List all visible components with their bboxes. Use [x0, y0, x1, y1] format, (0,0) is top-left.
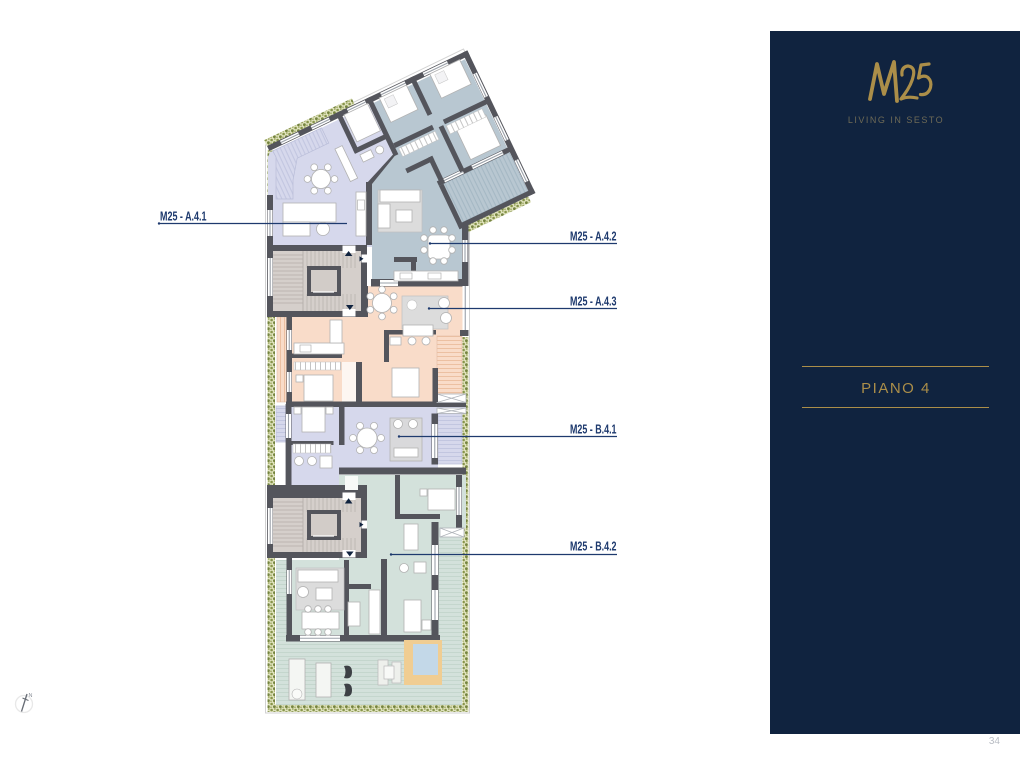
- svg-text:M25 - A.4.1: M25 - A.4.1: [160, 210, 207, 224]
- svg-text:LIVING IN SESTO: LIVING IN SESTO: [848, 115, 944, 125]
- svg-text:M25 - B.4.1: M25 - B.4.1: [570, 423, 617, 437]
- svg-text:PIANO 4: PIANO 4: [861, 380, 931, 397]
- svg-text:M25 - A.4.2: M25 - A.4.2: [570, 230, 617, 244]
- svg-text:N: N: [29, 693, 33, 699]
- svg-text:34: 34: [989, 736, 1001, 747]
- svg-text:M25 - B.4.2: M25 - B.4.2: [570, 540, 617, 554]
- svg-text:M25 - A.4.3: M25 - A.4.3: [570, 295, 617, 309]
